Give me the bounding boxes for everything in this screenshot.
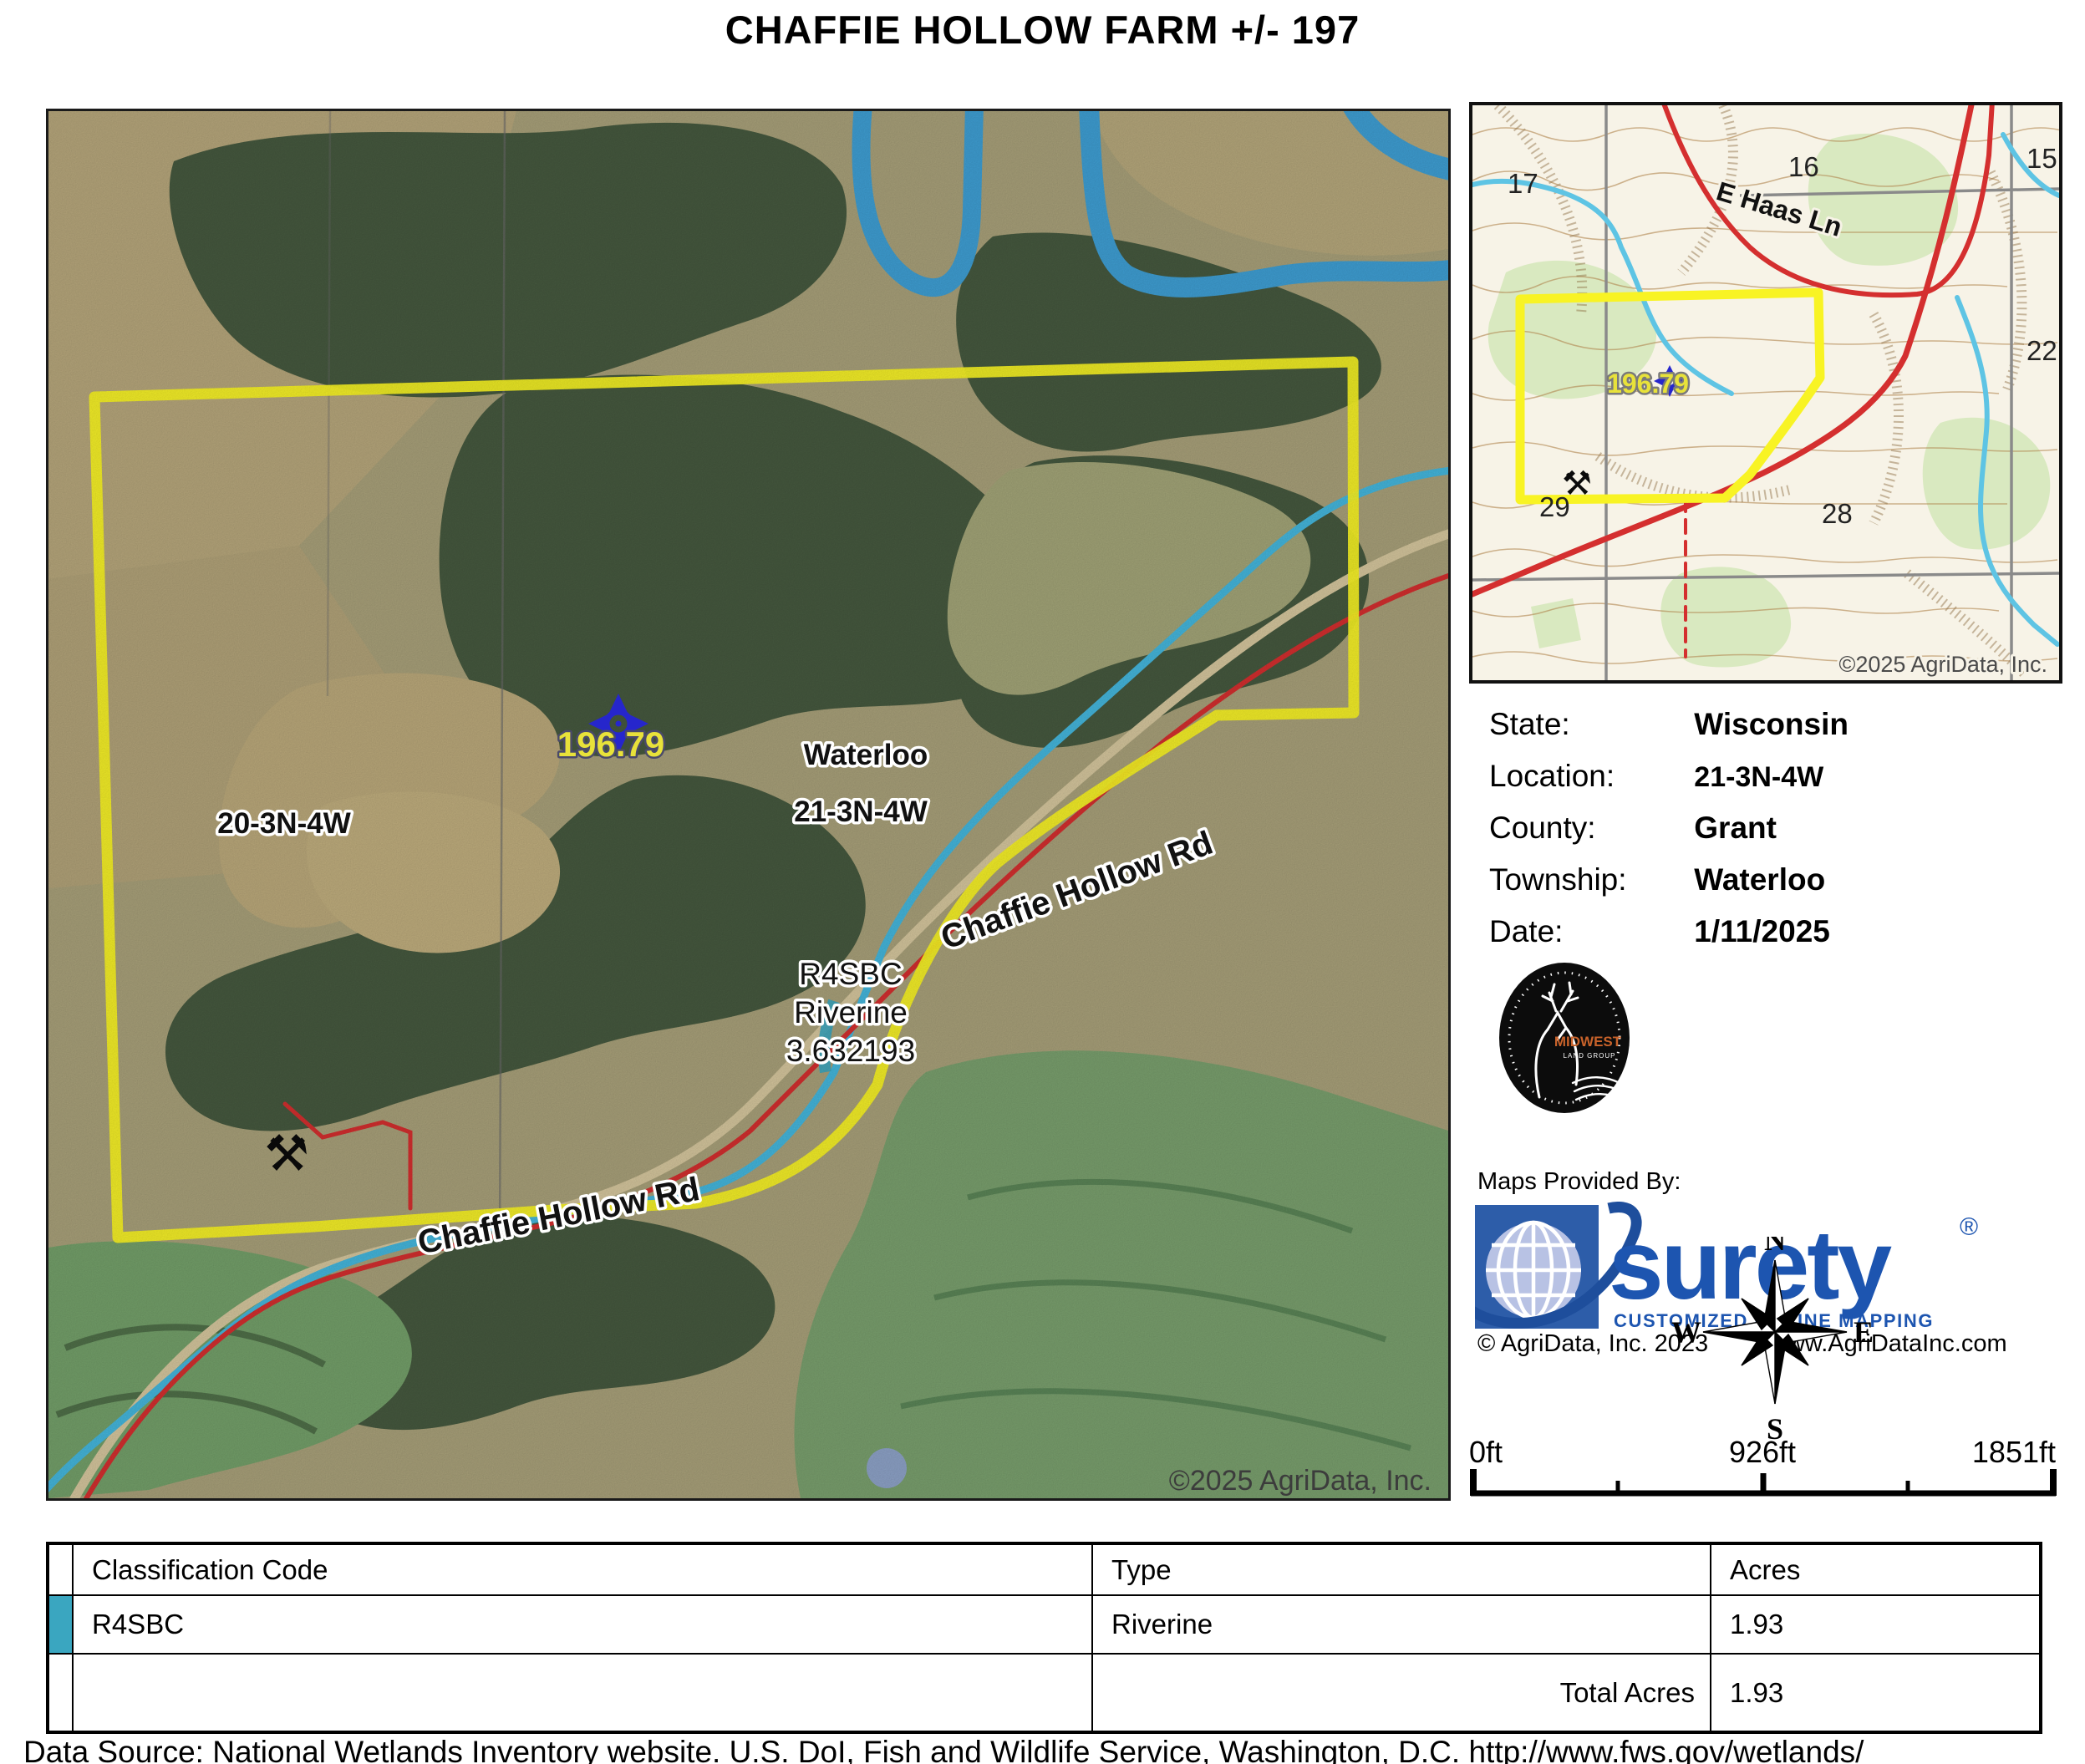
section-28: 28 <box>1822 498 1853 529</box>
info-row-township: Township: Waterloo <box>1489 862 2057 904</box>
table-row: R4SBC Riverine 1.93 <box>48 1595 2041 1654</box>
compass-north-label: N <box>1764 1237 1786 1257</box>
total-acres-label: Total Acres <box>1092 1654 1711 1732</box>
table-total-row: Total Acres 1.93 <box>48 1654 2041 1732</box>
info-row-date: Date: 1/11/2025 <box>1489 914 2057 956</box>
county-label: County: <box>1489 811 1686 846</box>
section-west-label: 20-3N-4W <box>217 807 350 840</box>
scale-bar: 0ft 926ft 1851ft <box>1469 1435 2056 1496</box>
info-row-location: Location: 21-3N-4W <box>1489 759 2057 801</box>
section-16: 16 <box>1788 151 1819 182</box>
state-value: Wisconsin <box>1694 707 1849 741</box>
info-row-state: State: Wisconsin <box>1489 707 2057 749</box>
midwest-logo-text: MIDWEST <box>1554 1034 1622 1050</box>
state-label: State: <box>1489 707 1686 742</box>
inset-acreage-label: 196.79 <box>1607 369 1689 399</box>
data-source-note: Data Source: National Wetlands Inventory… <box>23 1735 1864 1764</box>
scale-end-label: 1851ft <box>1972 1435 2056 1469</box>
swatch-total-cell <box>48 1654 73 1732</box>
date-value: 1/11/2025 <box>1694 914 1830 948</box>
total-empty-cell <box>73 1654 1092 1732</box>
compass-rose-icon: N S E W <box>1671 1237 1874 1446</box>
section-17: 17 <box>1508 168 1538 199</box>
section-22: 22 <box>2027 335 2057 366</box>
parcel-acreage-label: 196.79 <box>557 724 664 764</box>
inset-copyright: ©2025 AgriData, Inc. <box>1838 652 2047 677</box>
midwest-logo-subtext: LAND GROUP <box>1564 1052 1616 1060</box>
date-label: Date: <box>1489 914 1686 949</box>
classification-code-header: Classification Code <box>73 1543 1092 1595</box>
swatch-header-cell <box>48 1543 73 1595</box>
location-value: 21-3N-4W <box>1694 761 1823 793</box>
section-label: 21-3N-4W <box>794 796 927 828</box>
midwest-land-group-logo: MIDWEST LAND GROUP <box>1496 959 1638 1118</box>
info-row-county: County: Grant <box>1489 811 2057 852</box>
compass-and-scale: N S E W 0ft 926ft 1851ft <box>1454 1237 2072 1512</box>
aerial-texture <box>48 111 1448 1498</box>
township-label: Waterloo <box>804 739 928 771</box>
township-value: Waterloo <box>1694 862 1825 897</box>
compass-west-label: W <box>1671 1315 1701 1349</box>
wetland-type-label: Riverine <box>794 995 908 1029</box>
inset-topo-map: ⚒ 196.79 E Haas Ln 17 16 15 22 29 28 ©20 <box>1469 102 2062 684</box>
classification-code-cell: R4SBC <box>73 1595 1092 1654</box>
section-29: 29 <box>1539 491 1570 522</box>
wetland-color-swatch <box>48 1595 73 1654</box>
scale-start-label: 0ft <box>1469 1435 1503 1469</box>
township-label-info: Township: <box>1489 862 1686 897</box>
wetlands-table: Classification Code Type Acres R4SBC Riv… <box>46 1542 2042 1734</box>
acres-header: Acres <box>1711 1543 2041 1595</box>
wetland-code-label: R4SBC <box>799 957 902 991</box>
county-value: Grant <box>1694 811 1777 845</box>
wetland-acres-label: 3.632193 <box>786 1034 915 1068</box>
map-report-page: CHAFFIE HOLLOW FARM +/- 197 <box>0 0 2085 1764</box>
type-header: Type <box>1092 1543 1711 1595</box>
maps-provided-by-label: Maps Provided By: <box>1477 1168 1681 1196</box>
acres-cell: 1.93 <box>1711 1595 2041 1654</box>
total-acres-value: 1.93 <box>1711 1654 2041 1732</box>
table-header-row: Classification Code Type Acres <box>48 1543 2041 1595</box>
main-aerial-map-canvas: ⚒ 196.79 Waterloo 21-3N-4W 20-3N-4W Chaf… <box>48 111 1448 1498</box>
compass-east-label: E <box>1854 1315 1874 1349</box>
inset-topo-canvas: ⚒ 196.79 E Haas Ln 17 16 15 22 29 28 ©20 <box>1472 105 2059 680</box>
location-label: Location: <box>1489 759 1686 794</box>
page-title: CHAFFIE HOLLOW FARM +/- 197 <box>0 7 2085 53</box>
scale-mid-label: 926ft <box>1729 1435 1796 1469</box>
main-map-copyright: ©2025 AgriData, Inc. <box>1169 1465 1432 1497</box>
type-cell: Riverine <box>1092 1595 1711 1654</box>
section-15: 15 <box>2027 143 2057 174</box>
wetland-label-group: R4SBC Riverine 3.632193 <box>786 957 915 1068</box>
main-aerial-map: ⚒ 196.79 Waterloo 21-3N-4W 20-3N-4W Chaf… <box>46 109 1451 1501</box>
